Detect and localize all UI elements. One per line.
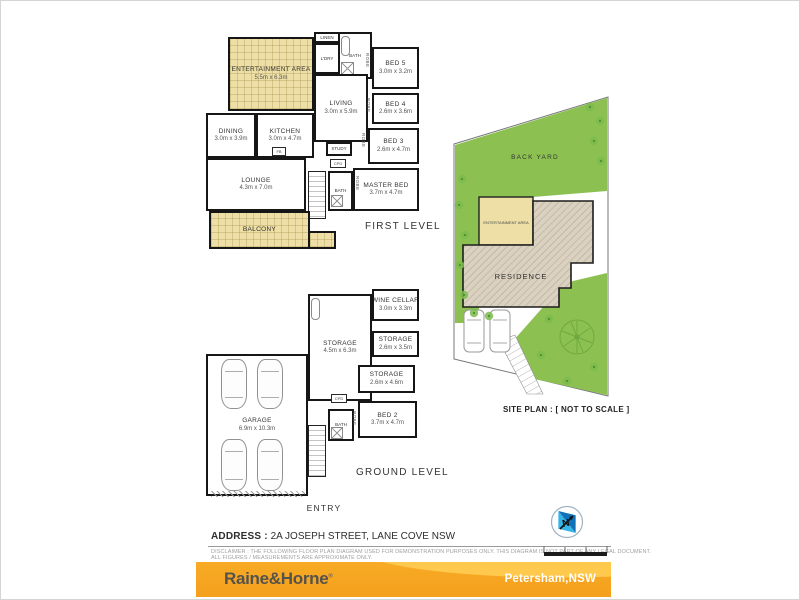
sink-bench-icon (311, 298, 320, 320)
room-label: BATH (349, 53, 361, 58)
room-storage-3: STORAGE 2.6m x 4.6m (358, 365, 415, 393)
north-compass-icon: N (549, 504, 585, 540)
room-label: GARAGE (242, 417, 272, 424)
room-label: WINE CELLAR (372, 297, 419, 304)
entertainment-area-label: ENTERTAINMENT AREA (483, 220, 529, 225)
room-linen: LINEN (314, 32, 340, 43)
registered-mark: ® (328, 573, 332, 579)
room-dims: 5.5m x 6.3m (254, 75, 287, 82)
room-label: BED 4 (385, 101, 405, 108)
robe-label: ROBE (361, 133, 366, 147)
tree-icon (590, 137, 598, 145)
brand-logo-text: Raine&Horne® (224, 569, 333, 589)
room-laundry: L'DRY (314, 43, 340, 74)
robe-label: ROBE (355, 176, 360, 190)
site-plan: BACK YARD ENTERTAINMENT AREA RESIDENCE (451, 83, 616, 423)
room-entertainment-area: ENTERTAINMENT AREA 5.5m x 6.3m (228, 37, 314, 111)
brand-banner: Raine&Horne® Petersham,NSW (196, 562, 611, 597)
room-dining: DINING 3.0m x 3.9m (206, 113, 256, 158)
tree-icon (458, 175, 466, 183)
room-master-bed: MASTER BED 3.7m x 4.7m (353, 168, 419, 211)
room-dims: 4.3m x 7.0m (239, 185, 272, 192)
room-storage-2: STORAGE 2.6m x 3.5m (372, 331, 419, 357)
address-line: ADDRESS : 2A JOSEPH STREET, LANE COVE NS… (211, 531, 455, 542)
room-label: BED 2 (377, 412, 397, 419)
residence-label: RESIDENCE (495, 272, 548, 281)
tree-icon (586, 103, 594, 111)
room-wine-cellar: WINE CELLAR 3.0m x 3.3m (372, 289, 419, 321)
robe-label: ROBE (352, 411, 357, 425)
tree-icon (455, 201, 463, 209)
room-bed5: BED 5 3.0m x 3.2m (372, 47, 419, 89)
room-label: BED 3 (383, 138, 403, 145)
cupboard-label: CPD (330, 159, 346, 168)
disclaimer-line-2: ALL FIGURES / MEASUREMENTS ARE APPROXIMA… (211, 555, 372, 561)
staircase-ground-level (308, 425, 326, 477)
tree-icon (596, 117, 604, 125)
robe-label: ROBE (365, 53, 370, 67)
room-dims: 3.0m x 3.9m (214, 136, 247, 143)
room-study: STUDY (326, 142, 352, 156)
room-label: BED 5 (385, 60, 405, 67)
tree-icon (461, 231, 469, 239)
balcony-extension (308, 231, 336, 249)
tree-icon (590, 363, 598, 371)
room-dims: 2.6m x 3.5m (379, 345, 412, 352)
shower-icon (331, 195, 343, 207)
room-dims: 3.7m x 4.7m (369, 190, 402, 197)
room-dims: 3.0m x 3.3m (379, 306, 412, 313)
fb-label: FB (276, 149, 281, 154)
room-label: ENTERTAINMENT AREA (231, 66, 310, 73)
room-lounge: LOUNGE 4.3m x 7.0m (206, 158, 306, 211)
entry-label: ENTRY (301, 503, 347, 513)
room-label: MASTER BED (363, 182, 408, 189)
robe-label: ROBE (366, 98, 371, 112)
room-label: STORAGE (379, 336, 413, 343)
room-label: BALCONY (243, 226, 276, 233)
cpd-label: CPD (334, 161, 342, 166)
ground-level-title: GROUND LEVEL (356, 467, 449, 478)
room-dims: 4.5m x 6.3m (323, 348, 356, 355)
room-bed2: BED 2 3.7m x 4.7m (358, 401, 417, 438)
room-dims: 2.6m x 3.6m (379, 109, 412, 116)
room-label: STORAGE (323, 340, 357, 347)
tree-icon (537, 351, 545, 359)
room-dims: 6.9m x 10.3m (239, 426, 275, 433)
tree-icon (545, 315, 553, 323)
garage-door-hatch (211, 491, 305, 497)
tree-icon (563, 377, 571, 385)
room-dims: 2.6m x 4.6m (370, 380, 403, 387)
room-dims: 3.0m x 5.9m (324, 109, 357, 116)
tree-icon (460, 291, 468, 299)
car-icon (257, 359, 283, 409)
site-plan-caption: SITE PLAN : [ NOT TO SCALE ] (503, 405, 615, 414)
room-bed4: BED 4 2.6m x 3.6m (372, 93, 419, 124)
tree-icon (485, 312, 493, 320)
room-dims: 3.0m x 3.2m (379, 69, 412, 76)
room-label: LIVING (329, 100, 352, 107)
tree-icon (456, 261, 464, 269)
floorplan-sheet: ENTERTAINMENT AREA 5.5m x 6.3m LINEN L'D… (0, 0, 800, 600)
room-bed3: BED 3 2.6m x 4.7m (368, 128, 419, 164)
cpd-label: CPD (335, 396, 343, 401)
first-level-title: FIRST LEVEL (365, 221, 441, 232)
room-label: LINEN (320, 35, 333, 40)
room-label: BATH (335, 188, 347, 193)
room-label: KITCHEN (270, 128, 301, 135)
address-value: 2A JOSEPH STREET, LANE COVE NSW (271, 531, 456, 542)
room-living: LIVING 3.0m x 5.9m (314, 74, 368, 142)
bathtub-icon (341, 36, 350, 56)
room-label: L'DRY (321, 56, 334, 61)
car-icon (221, 439, 247, 491)
office-location: Petersham,NSW (505, 573, 596, 585)
room-balcony: BALCONY (209, 211, 310, 249)
room-label: DINING (219, 128, 244, 135)
address-label: ADDRESS : (211, 531, 268, 542)
room-dims: 3.7m x 4.7m (371, 420, 404, 427)
cupboard-label: CPD (331, 394, 347, 403)
car-icon (221, 359, 247, 409)
staircase-first-level (308, 171, 326, 219)
room-dims: 2.6m x 4.7m (377, 147, 410, 154)
fridge-box-label: FB (272, 147, 286, 156)
room-label: STUDY (331, 146, 346, 151)
scale-bar (543, 546, 611, 557)
back-yard-label: BACK YARD (511, 154, 559, 161)
tree-icon (597, 157, 605, 165)
room-label: STORAGE (370, 371, 404, 378)
brand-name: Raine&Horne (224, 569, 328, 588)
room-label: LOUNGE (241, 177, 270, 184)
car-icon (257, 439, 283, 491)
room-dims: 3.0m x 4.7m (268, 136, 301, 143)
shower-icon (331, 427, 343, 439)
tree-icon (470, 309, 478, 317)
